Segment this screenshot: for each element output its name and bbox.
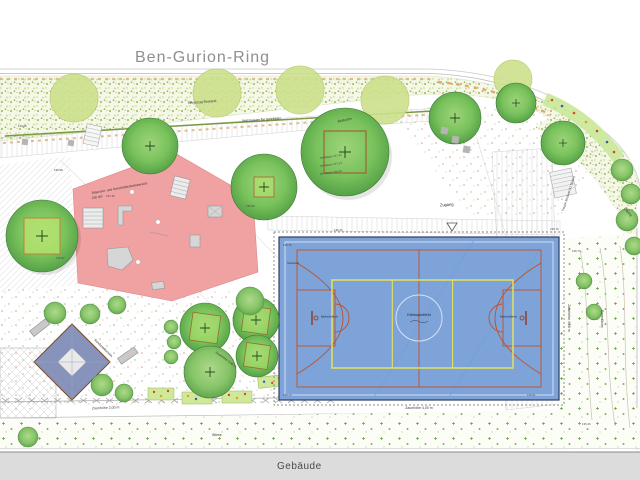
tree [6, 200, 78, 272]
tree-blutbuche: Blutbuche [301, 108, 389, 196]
shrub [80, 304, 100, 324]
equipment-stairs-1 [83, 208, 103, 228]
equipment-beam [152, 281, 165, 290]
shrub [236, 287, 264, 315]
shrub [586, 304, 602, 320]
tree [236, 335, 278, 377]
tree [541, 121, 585, 165]
spot-elevation: 136.43 [334, 228, 343, 232]
lawn-label: Rasenfläche [600, 310, 604, 328]
left-hoop-label: Basketballkorb [321, 315, 339, 319]
tree-light [193, 69, 241, 117]
equipment-box [208, 206, 222, 217]
access-label: Zugang [440, 202, 454, 208]
court-fence-right-label: Zaunhöhe 4,00 m [567, 304, 571, 332]
spot-elevation: 136.27 [56, 256, 65, 260]
shrub [167, 335, 181, 349]
spot-elevation: 135.26 [582, 422, 591, 426]
tree [184, 346, 236, 398]
shrub [115, 384, 133, 402]
shrub [91, 374, 113, 396]
tree [122, 118, 178, 174]
elevation-court-br: 136.41 [527, 393, 536, 397]
shrub [611, 159, 633, 181]
shrub [18, 427, 38, 447]
fence-low-label: Zaunhöhe 2,00 m [92, 405, 120, 410]
spot-elevation: 135.74 [550, 227, 559, 231]
tree-light [50, 74, 98, 122]
equipment-rect [190, 235, 200, 247]
meadow-right [556, 234, 636, 438]
shrub [164, 320, 178, 334]
shrub [44, 302, 66, 324]
shrub [108, 296, 126, 314]
meadow-label: Wiese [212, 433, 222, 437]
shrub [576, 273, 592, 289]
flower-bed [148, 388, 174, 400]
building-label: Gebäude [277, 461, 322, 472]
tree-light [276, 66, 324, 114]
court-fence-bottom-label: Zaunhöhe 4,00 m [405, 406, 433, 410]
elevation-court-tl: 135.76 [283, 243, 292, 247]
street-label: Ben-Gurion-Ring [135, 49, 270, 66]
shrub [164, 350, 178, 364]
spot-elevation: 137.46 [106, 194, 115, 198]
site-plan: Ben-Gurion-Ring Gebäude [0, 0, 640, 480]
tree [180, 303, 230, 353]
tree [496, 83, 536, 123]
spot-elevation: 136.06 [18, 124, 27, 128]
basketball-court: Kleinspielfeld Spielfeld Basketballkorb … [267, 232, 571, 410]
elevation-court-bl: 136.13 [283, 393, 292, 397]
shrub [621, 184, 640, 204]
flower-bed [222, 391, 252, 403]
meadow-strip-bottom [0, 408, 640, 450]
spot-elevation: 136.74 [572, 249, 581, 253]
site-plan-drawing: Ben-Gurion-Ring Gebäude [0, 0, 640, 480]
court-surface-label: Spielfeld [287, 261, 299, 265]
right-hoop-label: Basketballkorb [500, 315, 518, 319]
spot-elevation: 136.98 [54, 168, 63, 172]
shrub [625, 237, 640, 255]
court-center-label: Kleinspielfeld [407, 312, 431, 317]
tree [231, 154, 297, 220]
spot-elevation: 136.26 [246, 204, 255, 208]
